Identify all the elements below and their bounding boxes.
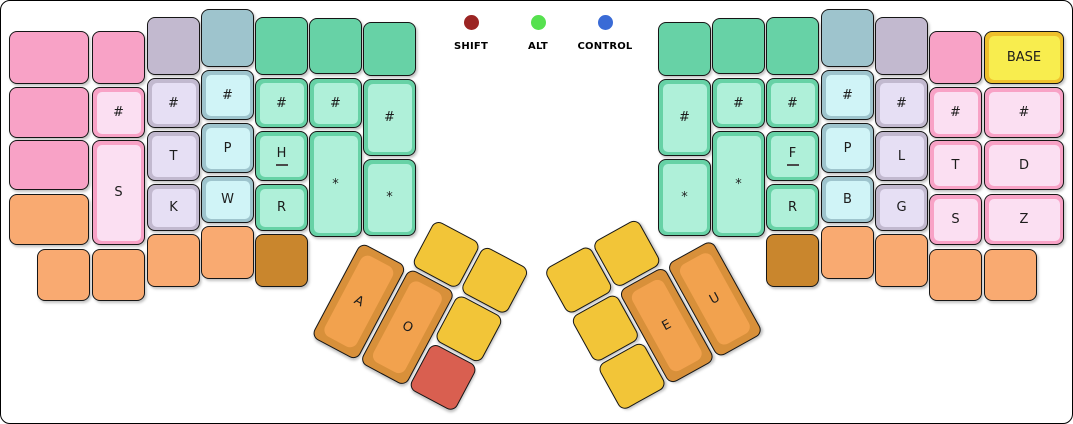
key-l-ring-r1[interactable] [147,17,200,75]
key-label-r-F: F [789,147,796,160]
keycap-r-G: G [880,189,924,227]
key-label-r-middle-number: # [842,89,853,102]
key-label-r-ring-number: # [896,97,907,110]
key-r-edge-number[interactable]: # [984,87,1064,138]
keycap-r-ring-number: # [880,83,924,124]
key-r-middle-bottom[interactable] [821,226,874,279]
key-r-base[interactable]: BASE [984,31,1064,84]
key-l-T[interactable]: T [147,131,200,181]
key-label-r-innermost-number: # [679,111,690,124]
keycap-l-W: W [206,181,250,219]
key-r-ring-r1[interactable] [875,17,928,75]
key-r-index-r1[interactable] [766,17,819,75]
control-indicator-dot [598,15,613,30]
key-label-lt-A: A [352,294,366,310]
key-label-lt-O: O [400,319,415,335]
key-l-edge-r3[interactable] [9,140,89,190]
key-label-l-T: T [170,150,178,163]
key-label-rt-U: U [708,291,723,307]
key-r-edge-bottom[interactable] [984,249,1037,301]
key-label-r-R: R [788,201,797,214]
key-r-middle-r1[interactable] [821,9,874,67]
keycap-r-D: D [989,145,1060,186]
key-l-index-number[interactable]: # [255,78,308,128]
key-l-bottom-2[interactable] [92,249,145,301]
key-label-l-innermost-star: * [386,191,393,204]
key-label-l-index-number: # [276,97,287,110]
steno-keyboard-panel: SHIFT ALT CONTROL #S#TK#PW#HR#*#*#*#*#FR… [0,0,1073,424]
key-label-r-base: BASE [1007,51,1041,64]
keycap-r-star-tall: * [717,136,761,233]
keycap-r-innermost-number: # [663,84,707,152]
key-r-index-number[interactable]: # [766,78,819,128]
key-l-H[interactable]: H [255,131,308,181]
key-l-middle-bottom[interactable] [201,226,254,279]
key-l-edge-r4[interactable] [9,194,89,245]
key-r-ring-bottom[interactable] [875,234,928,287]
key-l-inner-number[interactable]: # [309,78,362,128]
key-label-l-P: P [224,142,232,155]
key-l-K[interactable]: K [147,184,200,231]
keycap-l-T: T [152,136,196,177]
key-label-l-pinky-number: # [113,106,124,119]
key-label-r-star-tall: * [735,178,742,191]
keycap-l-star-tall: * [314,136,358,233]
key-l-edge-r2[interactable] [9,87,89,138]
key-label-rt-E: E [660,318,673,333]
key-r-B[interactable]: B [821,176,874,223]
key-l-bottom-1[interactable] [37,249,90,301]
key-r-L[interactable]: L [875,131,928,181]
alt-indicator-dot [531,15,546,30]
key-r-innermost-number[interactable]: # [658,79,711,156]
key-label-r-S: S [951,213,959,226]
keycap-l-P: P [206,128,250,169]
keycap-r-base: BASE [989,36,1060,80]
key-label-l-inner-number: # [330,97,341,110]
key-r-ring-number[interactable]: # [875,78,928,128]
key-l-R[interactable]: R [255,184,308,231]
keycap-r-B: B [826,181,870,219]
keycap-l-H: H [260,136,304,177]
key-label-l-innermost-number: # [384,111,395,124]
keycap-l-middle-number: # [206,75,250,116]
key-r-T[interactable]: T [929,140,982,190]
key-label-r-B: B [843,193,852,206]
key-l-index-r1[interactable] [255,17,308,75]
key-l-innermost-r1[interactable] [363,22,416,76]
home-row-marker [787,164,799,166]
key-label-l-R: R [277,201,286,214]
key-r-inner-number[interactable]: # [712,78,765,128]
key-label-r-G: G [896,201,906,214]
key-label-r-T: T [952,159,960,172]
keycap-r-edge-number: # [989,92,1060,134]
alt-indicator-label: ALT [528,41,548,52]
keycap-l-S: S [97,145,141,241]
control-indicator-label: CONTROL [577,41,632,52]
keycap-l-ring-number: # [152,83,196,124]
key-l-innermost-number[interactable]: # [363,79,416,156]
key-label-l-ring-number: # [168,97,179,110]
keycap-r-L: L [880,136,924,177]
key-r-pinky-bottom[interactable] [929,249,982,301]
key-label-l-H: H [277,147,287,160]
key-label-r-L: L [898,150,905,163]
keycap-l-pinky-number: # [97,92,141,134]
keycap-r-pinky-number: # [934,92,978,134]
keycap-r-R: R [771,189,815,227]
key-r-innermost-r1[interactable] [658,22,711,76]
key-label-l-middle-number: # [222,89,233,102]
key-l-S[interactable]: S [92,140,145,245]
key-l-innermost-star[interactable]: * [363,159,416,236]
keycap-r-inner-number: # [717,83,761,124]
key-l-middle-number[interactable]: # [201,70,254,120]
keycap-l-innermost-number: # [368,84,412,152]
key-l-W[interactable]: W [201,176,254,223]
shift-indicator-label: SHIFT [454,41,488,52]
key-label-r-D: D [1019,159,1029,172]
keycap-r-middle-number: # [826,75,870,116]
key-l-index-bottom[interactable] [255,234,308,287]
key-l-star-tall[interactable]: * [309,131,362,237]
key-label-r-edge-number: # [1019,106,1030,119]
key-r-R[interactable]: R [766,184,819,231]
key-r-innermost-star[interactable]: * [658,159,711,236]
key-r-D[interactable]: D [984,140,1064,190]
key-label-r-pinky-number: # [950,106,961,119]
key-label-l-S: S [114,186,122,199]
keycap-r-F: F [771,136,815,177]
key-r-pinky-r1[interactable] [929,31,982,84]
key-l-edge-r1[interactable] [9,31,89,84]
home-row-marker [276,164,288,166]
indicator-control: CONTROL [560,15,650,52]
key-r-star-tall[interactable]: * [712,131,765,237]
shift-indicator-dot [464,15,479,30]
key-label-l-K: K [169,201,178,214]
key-l-P[interactable]: P [201,123,254,173]
key-l-inner-r1[interactable] [309,18,362,74]
keycap-r-index-number: # [771,83,815,124]
keycap-r-P: P [826,128,870,169]
key-label-r-Z: Z [1020,213,1029,226]
keycap-l-inner-number: # [314,83,358,124]
key-l-ring-bottom[interactable] [147,234,200,287]
key-label-l-star-tall: * [332,178,339,191]
key-label-r-P: P [844,142,852,155]
key-l-middle-r1[interactable] [201,9,254,67]
key-l-pinky-number[interactable]: # [92,87,145,138]
key-l-pinky-r1[interactable] [92,31,145,84]
keycap-r-innermost-star: * [663,164,707,232]
key-label-r-inner-number: # [733,97,744,110]
key-r-Z[interactable]: Z [984,194,1064,245]
key-r-P[interactable]: P [821,123,874,173]
keycap-l-R: R [260,189,304,227]
keycap-r-S: S [934,199,978,241]
key-r-inner-r1[interactable] [712,18,765,74]
keycap-l-K: K [152,189,196,227]
key-r-pinky-number[interactable]: # [929,87,982,138]
keycap-l-index-number: # [260,83,304,124]
key-l-ring-number[interactable]: # [147,78,200,128]
key-r-F[interactable]: F [766,131,819,181]
keycap-r-Z: Z [989,199,1060,241]
key-r-index-bottom[interactable] [766,234,819,287]
keycap-r-T: T [934,145,978,186]
key-label-r-index-number: # [787,97,798,110]
key-label-l-W: W [221,193,234,206]
keycap-l-innermost-star: * [368,164,412,232]
key-r-middle-number[interactable]: # [821,70,874,120]
key-r-S[interactable]: S [929,194,982,245]
key-label-r-innermost-star: * [681,191,688,204]
key-r-G[interactable]: G [875,184,928,231]
